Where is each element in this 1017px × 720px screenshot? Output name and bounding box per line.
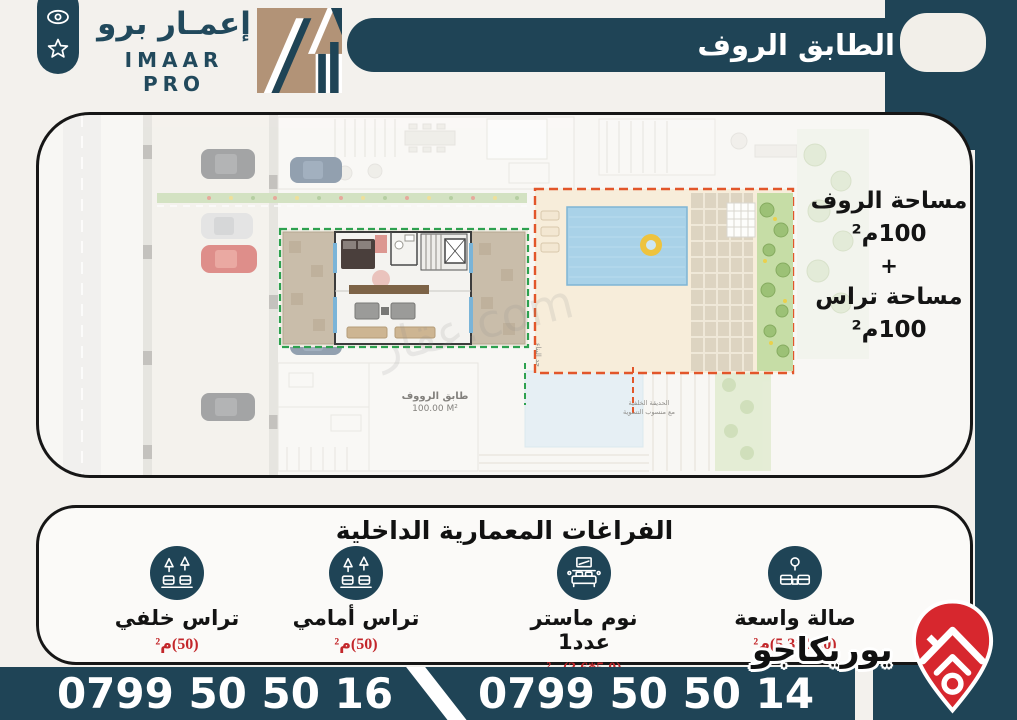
feature-label: تراس أمامي (276, 606, 436, 630)
brand-logo-mark (257, 8, 342, 93)
plus-sign: + (809, 251, 969, 281)
floor-label: طابق الرووف (402, 391, 469, 402)
floor-area-label: 100.00 M² (412, 404, 458, 414)
flyer-page: الطابق الروف إعمـار برو IMAAR PRO (0, 0, 1017, 720)
feature-label: تراس خلفي (97, 606, 257, 630)
location-pin-house-icon (903, 597, 1002, 715)
feature-label: صالة واسعة (715, 606, 875, 630)
counter (349, 285, 429, 294)
bed-icon (557, 546, 611, 600)
terrace-icon (329, 546, 383, 600)
roof-area-value: 100م² (809, 218, 969, 251)
banner-white-pill (900, 13, 986, 72)
terrace-area-value: 100م² (809, 314, 969, 347)
sofa-icon (768, 546, 822, 600)
feature-back-terrace: تراس خلفي (50)م² (97, 546, 257, 654)
brand-name-english: IMAAR PRO (92, 48, 256, 96)
boundary-label: حد البناء (534, 343, 542, 367)
sun-loungers (541, 211, 559, 252)
roof-area-label: مساحة الروف (809, 185, 969, 218)
pool (567, 207, 687, 285)
eye-icon (45, 9, 71, 29)
star-icon (46, 37, 70, 65)
garden-label-line2: مع منسوب التسوية (623, 408, 675, 416)
garden-label-line1: الحديقة الخلفية (629, 399, 670, 407)
page-title: الطابق الروف (697, 28, 895, 62)
features-title: الفراغات المعمارية الداخلية (39, 516, 970, 545)
phone-divider-slash (406, 667, 470, 720)
feature-master-bedroom: نوم ماستر عدد1 (5.0*3.6)م² (504, 546, 664, 678)
terrace-icon (150, 546, 204, 600)
floor-plan-card: طابق الرووف 100.00 M² حد البناء الحديقة … (36, 112, 973, 478)
brand-badge-pill (37, 0, 79, 74)
terrace-zone (535, 189, 793, 373)
phone-bar: 0799 50 50 16 0799 50 50 14 (0, 667, 855, 720)
feature-label: نوم ماستر عدد1 (504, 606, 664, 654)
phone-number-left: 0799 50 50 16 (35, 669, 415, 718)
site-logo-name: يوريكاجو (752, 630, 920, 669)
feature-front-terrace: تراس أمامي (50)م² (276, 546, 436, 654)
area-summary: مساحة الروف 100م² + مساحة تراس 100م² (809, 185, 969, 347)
left-terrace (283, 232, 335, 344)
armchair (355, 303, 379, 319)
phone-number-right: 0799 50 50 14 (478, 669, 813, 718)
feature-value: (50)م² (97, 634, 257, 654)
terrace-area-label: مساحة تراس (809, 281, 969, 314)
brand-name-arabic: إعمـار برو (92, 6, 256, 42)
feature-value: (50)م² (276, 634, 436, 654)
